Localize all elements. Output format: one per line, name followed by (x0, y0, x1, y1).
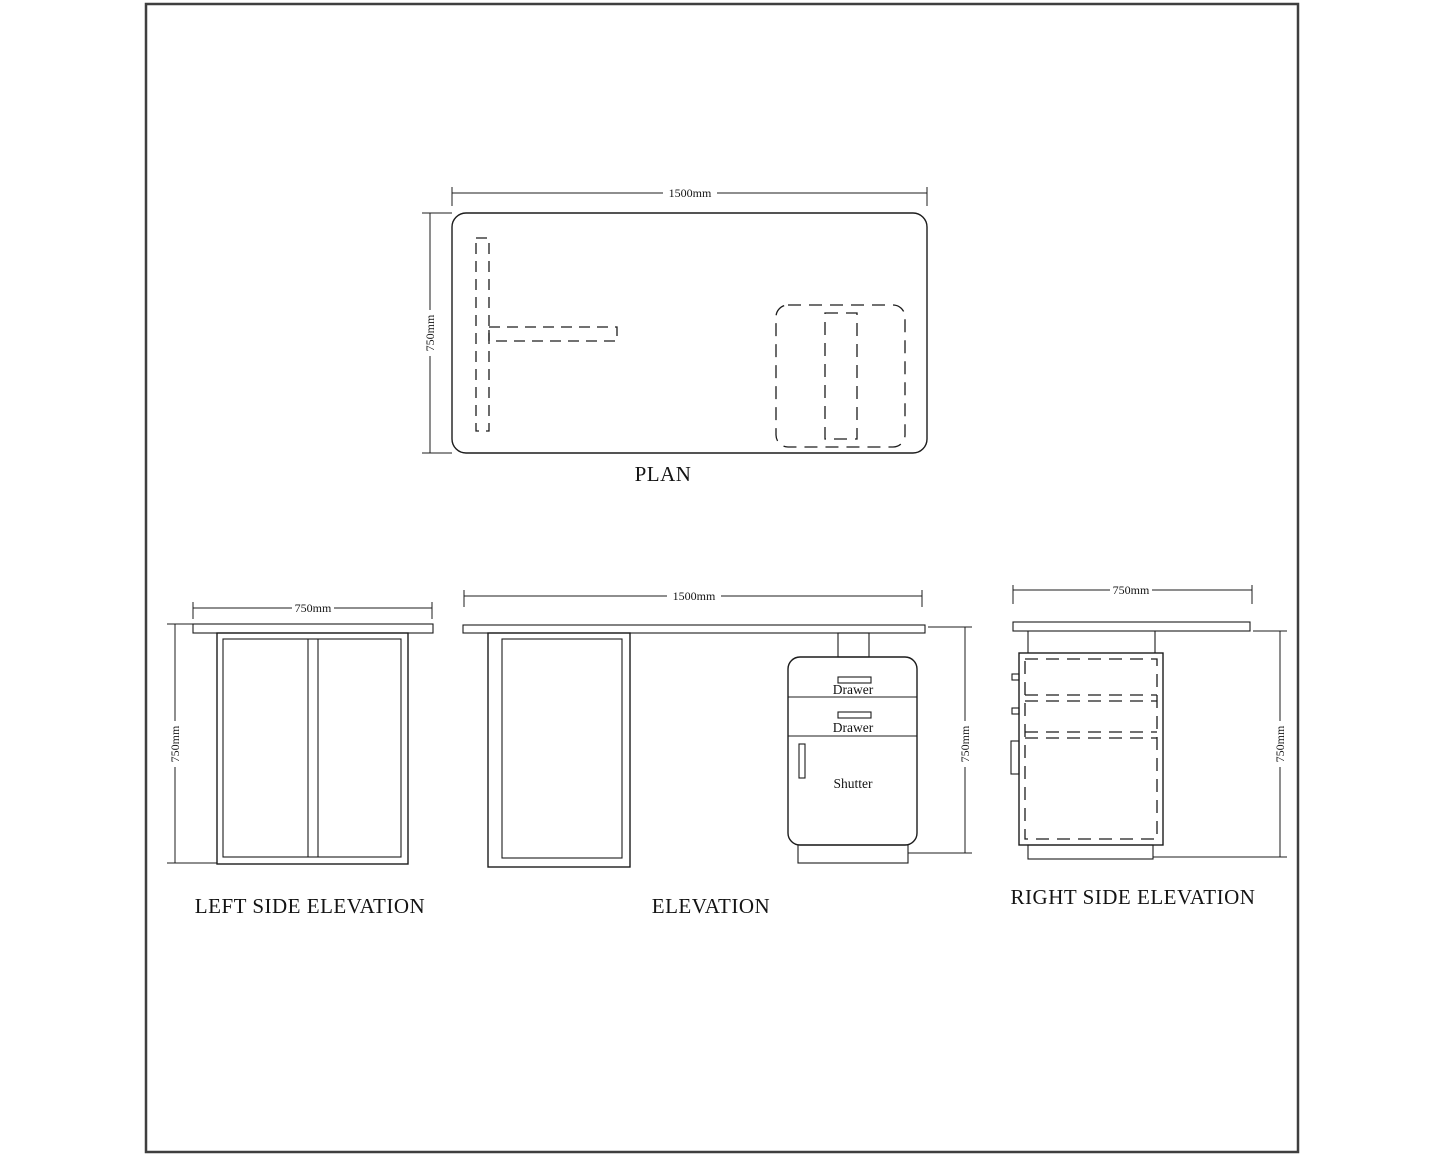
lse-view-title: LEFT SIDE ELEVATION (195, 894, 425, 918)
plan-pedestal-hidden-outline (776, 305, 905, 447)
plan-view: 1500mm 750mm PLAN (422, 186, 927, 486)
rse-shutter-handle-side (1011, 741, 1019, 774)
plan-view-title: PLAN (635, 462, 692, 486)
elevation-leg-inner-panel (502, 639, 622, 858)
lse-height-dimension: 750mm (167, 624, 217, 863)
rse-view-title: RIGHT SIDE ELEVATION (1011, 885, 1256, 909)
elevation-drawer-handle-2 (838, 712, 871, 718)
elevation-drawer-top-label: Drawer (833, 682, 874, 697)
plan-width-dimension-label: 1500mm (669, 186, 712, 200)
plan-leg-hidden-outline (476, 238, 489, 431)
rse-drawer-handle-side-2 (1012, 708, 1019, 714)
elevation-view-title: ELEVATION (652, 894, 770, 918)
rse-height-dimension-label: 750mm (1273, 725, 1287, 762)
elevation-height-dimension-label: 750mm (958, 725, 972, 762)
rse-desk-top-slab (1013, 622, 1250, 631)
plan-depth-dimension-label: 750mm (423, 314, 437, 351)
plan-pedestal-inner-hidden-outline (825, 313, 857, 439)
lse-leg-outer-frame (217, 633, 408, 864)
elevation-leg-outer-frame (488, 633, 630, 867)
lse-desk-top-slab (193, 624, 433, 633)
elevation-view: 1500mm Drawer Drawer Shutter 750mm ELEVA… (463, 589, 972, 918)
elevation-width-dimension-label: 1500mm (673, 589, 716, 603)
rse-height-dimension: 750mm (1153, 631, 1287, 857)
sheet-border (146, 4, 1298, 1152)
rse-width-dimension: 750mm (1013, 583, 1252, 604)
rse-cabinet-plinth (1028, 845, 1153, 859)
plan-support-arm-hidden-outline (489, 327, 617, 341)
rse-drawer-handle-side-1 (1012, 674, 1019, 680)
lse-width-dimension: 750mm (193, 601, 432, 619)
elevation-drawer-middle-label: Drawer (833, 720, 874, 735)
elevation-shutter-label: Shutter (834, 776, 874, 791)
cad-drawing-canvas: 1500mm 750mm PLAN 750mm (0, 0, 1445, 1156)
lse-leg-inner-panel (223, 639, 401, 857)
elevation-pedestal-connector (838, 633, 869, 657)
elevation-desk-top-slab (463, 625, 925, 633)
plan-depth-dimension: 750mm (422, 213, 452, 453)
lse-height-dimension-label: 750mm (168, 725, 182, 762)
elevation-pedestal-plinth (798, 845, 908, 863)
rse-cabinet-outline (1019, 653, 1163, 845)
left-side-elevation-view: 750mm 750mm LEFT SIDE ELEVATION (167, 601, 433, 918)
elevation-shutter-handle (799, 744, 805, 778)
plan-desk-top-outline (452, 213, 927, 453)
rse-cabinet-hidden-panel (1025, 659, 1157, 839)
lse-width-dimension-label: 750mm (295, 601, 332, 615)
drawing-sheet: 1500mm 750mm PLAN 750mm (0, 0, 1445, 1156)
rse-width-dimension-label: 750mm (1113, 583, 1150, 597)
elevation-width-dimension: 1500mm (464, 589, 922, 607)
plan-width-dimension: 1500mm (452, 186, 927, 206)
right-side-elevation-view: 750mm 750mm RIGHT SIDE ELEVATION (1011, 583, 1287, 909)
